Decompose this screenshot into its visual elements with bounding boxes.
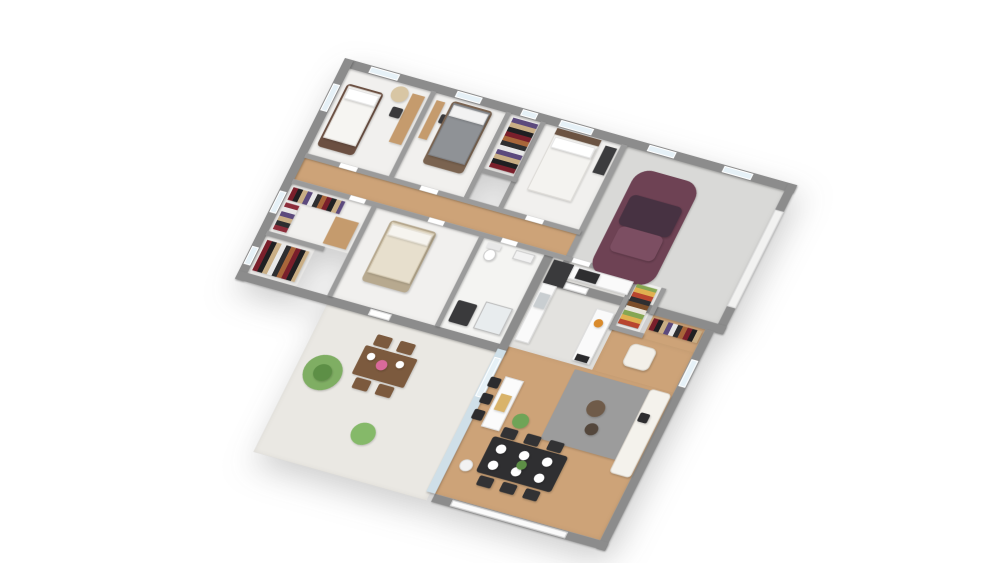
floor-plan-canvas — [0, 0, 1000, 563]
floor-plan — [158, 58, 797, 560]
